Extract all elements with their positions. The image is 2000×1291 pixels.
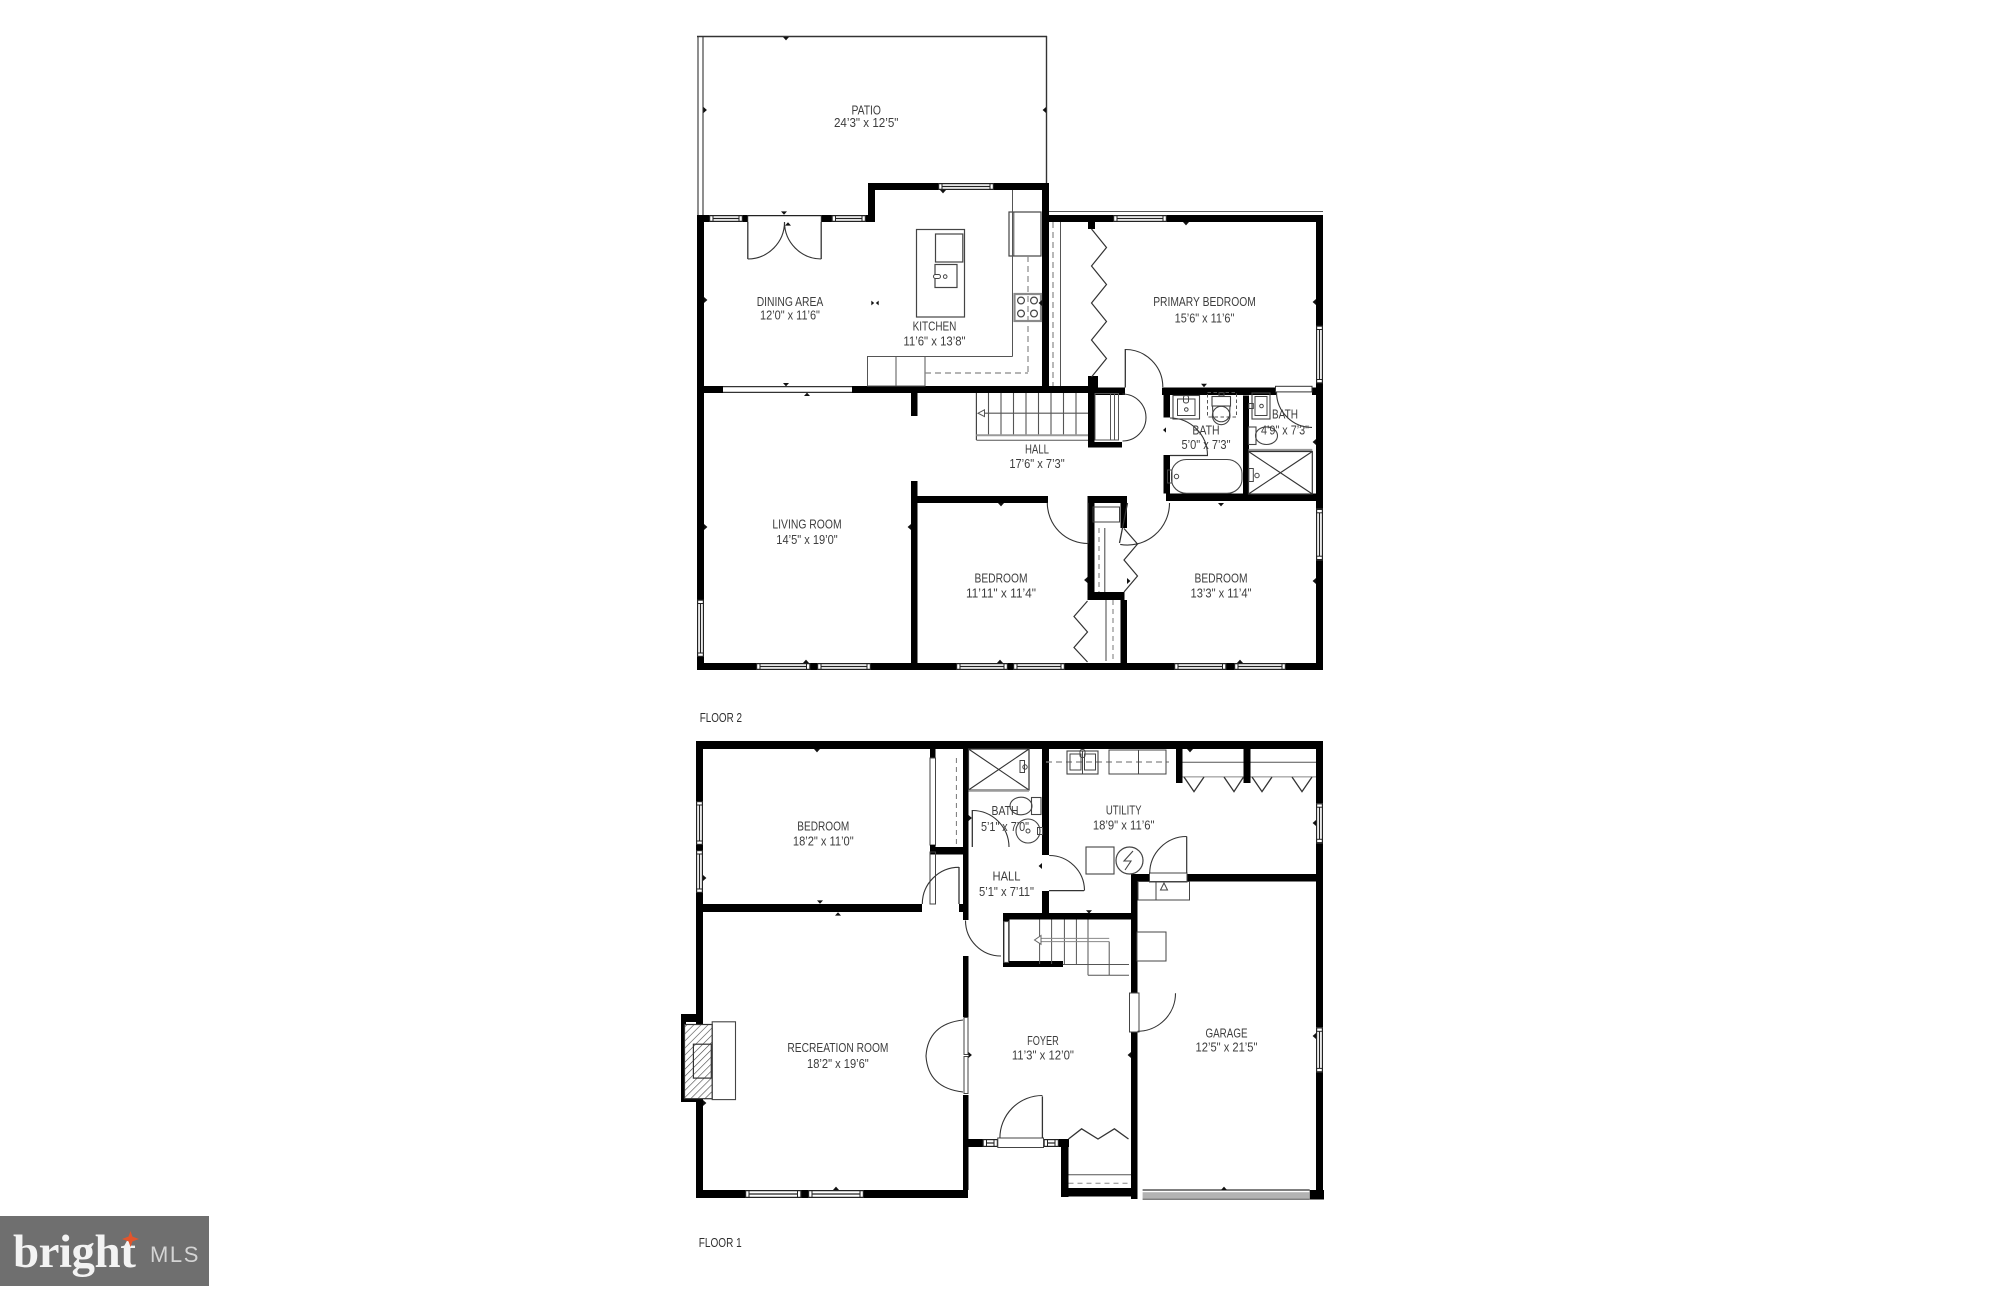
svg-text:BEDROOM: BEDROOM [797, 819, 849, 834]
svg-text:BEDROOM: BEDROOM [975, 571, 1028, 586]
svg-text:18’2" x 19’6": 18’2" x 19’6" [807, 1056, 869, 1071]
svg-text:14’5" x 19’0": 14’5" x 19’0" [776, 532, 838, 547]
svg-text:15’6" x 11’6": 15’6" x 11’6" [1175, 311, 1235, 326]
svg-text:17’6" x 7’3": 17’6" x 7’3" [1009, 456, 1065, 471]
svg-text:5’1" x 7’11": 5’1" x 7’11" [979, 884, 1034, 899]
svg-text:BEDROOM: BEDROOM [1195, 571, 1248, 586]
svg-text:BATH: BATH [1192, 423, 1219, 438]
svg-text:5’0" x 7’3": 5’0" x 7’3" [1182, 437, 1231, 452]
svg-text:12’5" x 21’5": 12’5" x 21’5" [1196, 1040, 1258, 1055]
svg-text:MLS: MLS [150, 1242, 200, 1267]
svg-text:HALL: HALL [1025, 442, 1049, 457]
svg-text:BATH: BATH [1272, 407, 1298, 422]
svg-text:5’1" x 7’0": 5’1" x 7’0" [981, 819, 1029, 834]
svg-text:11’6" x 13’8": 11’6" x 13’8" [903, 333, 966, 348]
svg-text:KITCHEN: KITCHEN [913, 319, 957, 334]
svg-text:BATH: BATH [992, 803, 1019, 818]
svg-text:GARAGE: GARAGE [1206, 1026, 1248, 1041]
svg-text:UTILITY: UTILITY [1106, 803, 1142, 818]
svg-text:12’0" x 11’6": 12’0" x 11’6" [760, 308, 820, 323]
svg-text:PRIMARY BEDROOM: PRIMARY BEDROOM [1153, 294, 1256, 309]
svg-text:4’9" x 7’3": 4’9" x 7’3" [1261, 423, 1309, 438]
svg-text:RECREATION ROOM: RECREATION ROOM [787, 1040, 888, 1055]
svg-text:HALL: HALL [993, 869, 1021, 884]
svg-text:FOYER: FOYER [1027, 1033, 1059, 1048]
svg-text:24’3" x 12’5": 24’3" x 12’5" [834, 115, 899, 130]
svg-text:18’2" x 11’0": 18’2" x 11’0" [793, 834, 854, 849]
svg-text:11’3" x 12’0": 11’3" x 12’0" [1012, 1047, 1074, 1062]
svg-text:FLOOR 1: FLOOR 1 [699, 1236, 742, 1250]
svg-text:bright: bright [13, 1226, 136, 1278]
svg-text:13’3" x 11’4": 13’3" x 11’4" [1191, 585, 1252, 600]
svg-text:18’9" x 11’6": 18’9" x 11’6" [1093, 817, 1155, 832]
svg-text:11’11" x 11’4": 11’11" x 11’4" [966, 585, 1036, 600]
svg-text:LIVING ROOM: LIVING ROOM [772, 517, 841, 532]
svg-text:FLOOR 2: FLOOR 2 [700, 711, 742, 725]
